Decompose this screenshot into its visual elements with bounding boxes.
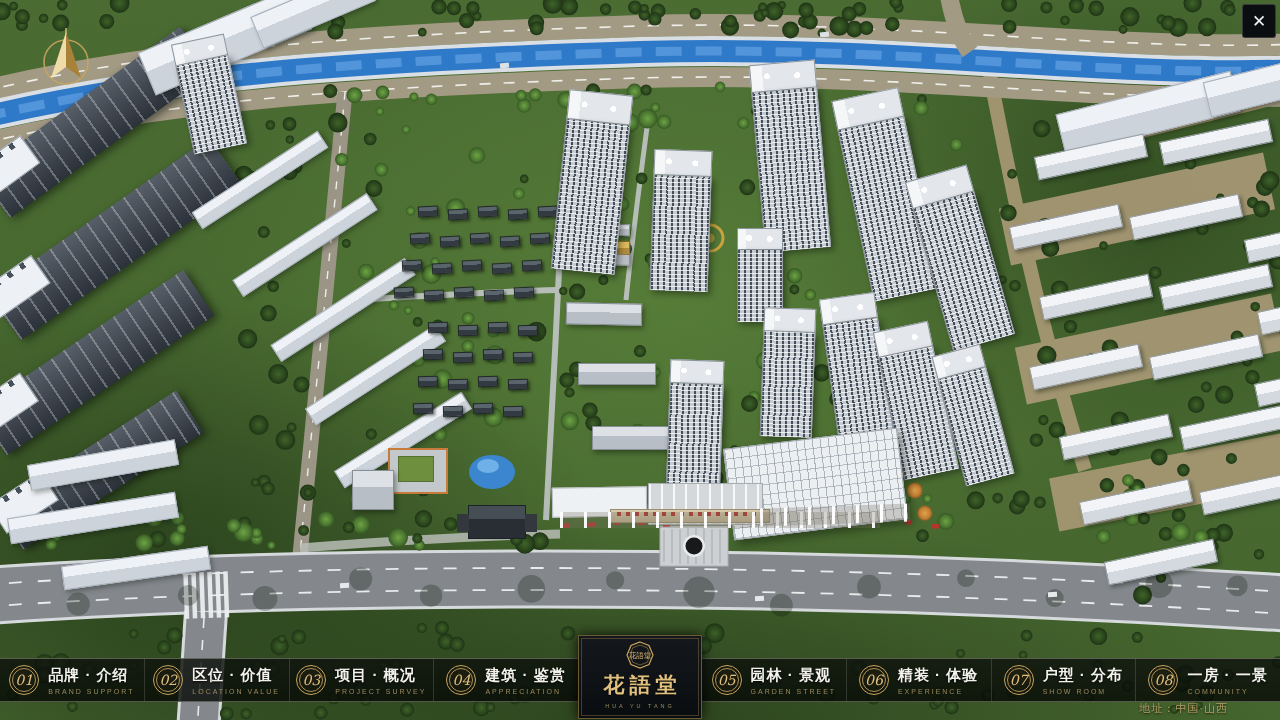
building-tower	[760, 307, 816, 438]
nav-label-cn: 精装 · 体验	[898, 666, 978, 685]
building-courtyard-house	[454, 286, 475, 298]
nav-label-cn: 建筑 · 鉴赏	[485, 666, 565, 685]
building-courtyard-house	[424, 289, 445, 301]
building-tower	[666, 359, 725, 500]
nav-item-floorplan-distribution[interactable]: 07 户型 · 分布 SHOW ROOM	[991, 659, 1136, 701]
nav-item-location-value[interactable]: 02 区位 · 价值 LOCATION VALUE	[144, 659, 289, 701]
building-roof-parapet	[0, 373, 39, 436]
building-warehouse	[1254, 361, 1280, 408]
building-courtyard-house	[484, 289, 505, 301]
building-warehouse	[1009, 204, 1124, 251]
building-residential-slab	[1203, 49, 1280, 118]
nav-label-cn: 户型 · 分布	[1043, 666, 1123, 685]
close-button[interactable]: ✕	[1242, 4, 1276, 38]
svg-text:花語堂: 花語堂	[629, 651, 652, 660]
building-courtyard-house	[453, 352, 473, 364]
nav-label-en: SHOW ROOM	[1043, 688, 1123, 695]
building-warehouse	[1059, 414, 1174, 461]
building-courtyard-house	[402, 259, 423, 271]
logo-title: 花語堂	[599, 671, 682, 699]
building-roof-parapet	[0, 135, 40, 199]
building-courtyard-house	[488, 322, 508, 334]
nav-label-cn: 区位 · 价值	[192, 666, 280, 685]
building-courtyard-house	[508, 379, 528, 391]
building-residential-slab	[232, 193, 377, 297]
building-tower	[650, 149, 713, 292]
building-warehouse	[1149, 334, 1264, 381]
nav-number-badge: 08	[1148, 665, 1178, 695]
building-courtyard-house	[478, 205, 499, 217]
nav-number-badge: 01	[9, 665, 39, 695]
building-warehouse	[1199, 469, 1280, 516]
building-courtyard-house	[473, 403, 493, 415]
building-courtyard-house	[514, 286, 535, 298]
nav-group-right: 05 园林 · 景观 GARDEN STREET 06 精装 · 体验 EXPE…	[702, 659, 1280, 701]
logo-subtitle: HUA YU TANG	[605, 703, 675, 709]
nav-label-en: PROJECT SURVEY	[335, 688, 426, 695]
app-window: ✕ 01 品牌 · 介绍 BRAND SUPPORT 02 区位 · 价值 LO…	[0, 0, 1280, 720]
building-tower	[749, 59, 831, 252]
building-courtyard-house	[448, 208, 469, 220]
building-courtyard-house	[503, 406, 523, 418]
parking-colonnade	[760, 503, 911, 526]
buildings-layer	[0, 0, 1280, 720]
building-courtyard-house	[483, 349, 503, 361]
building-midrise-slab	[352, 470, 394, 510]
masterplan-render	[0, 0, 1280, 720]
building-courtyard-house	[448, 379, 468, 391]
building-courtyard-house	[443, 406, 463, 418]
building-courtyard-house	[428, 322, 448, 334]
building-clubhouse	[388, 448, 448, 494]
nav-label-en: LOCATION VALUE	[192, 688, 280, 695]
building-courtyard-house	[492, 262, 513, 274]
building-courtyard-house	[462, 259, 483, 271]
building-warehouse	[1257, 289, 1280, 336]
building-midrise-slab	[578, 363, 656, 385]
nav-number-badge: 02	[153, 665, 183, 695]
building-midrise-slab	[566, 302, 642, 325]
nav-label-en: GARDEN STREET	[751, 688, 837, 695]
building-courtyard-house	[458, 325, 478, 337]
nav-item-architecture-appreciation[interactable]: 04 建筑 · 鉴赏 APPRECIATION	[433, 659, 578, 701]
building-midrise-slab	[592, 426, 674, 450]
building-warehouse	[1159, 264, 1274, 311]
nav-label-en: EXPERIENCE	[898, 688, 978, 695]
building-courtyard-house	[508, 208, 529, 220]
building-roof-parapet	[0, 255, 51, 318]
nav-item-interior-experience[interactable]: 06 精装 · 体验 EXPERIENCE	[846, 659, 991, 701]
building-courtyard-house	[500, 235, 521, 247]
building-courtyard-house	[518, 325, 538, 337]
building-warehouse	[1104, 539, 1219, 586]
building-courtyard-house	[423, 349, 443, 361]
nav-number-badge: 03	[296, 665, 326, 695]
center-logo-home[interactable]: 花語堂 花語堂 HUA YU TANG	[578, 635, 702, 719]
building-warehouse	[1029, 344, 1144, 391]
compass-icon	[36, 26, 100, 96]
building-warehouse	[1079, 479, 1194, 526]
nav-label-cn: 品牌 · 介绍	[48, 666, 134, 685]
nav-label-cn: 园林 · 景观	[751, 666, 837, 685]
nav-label-en: BRAND SUPPORT	[48, 688, 134, 695]
building-residential-slab	[61, 546, 211, 590]
nav-number-badge: 05	[712, 665, 742, 695]
building-warehouse	[1244, 217, 1280, 264]
nav-item-garden-landscape[interactable]: 05 园林 · 景观 GARDEN STREET	[702, 659, 846, 701]
building-residential-slab	[270, 258, 415, 362]
building-courtyard-house	[432, 262, 453, 274]
building-courtyard-house	[394, 286, 415, 298]
site-address: 地址：中国·山西	[1139, 701, 1228, 716]
nav-label-cn: 项目 · 概况	[335, 666, 426, 685]
building-warehouse	[1129, 194, 1244, 241]
building-courtyard-house	[413, 403, 433, 415]
nav-item-brand-intro[interactable]: 01 品牌 · 介绍 BRAND SUPPORT	[0, 659, 144, 701]
nav-item-room-view[interactable]: 08 一房 · 一景 COMMUNITY	[1135, 659, 1280, 701]
building-warehouse	[1039, 274, 1154, 321]
building-courtyard-house	[530, 232, 551, 244]
building-courtyard-house	[410, 232, 431, 244]
nav-item-project-overview[interactable]: 03 项目 · 概况 PROJECT SURVEY	[289, 659, 434, 701]
building-courtyard-house	[513, 352, 533, 364]
building-courtyard-house	[418, 205, 439, 217]
building-courtyard-house	[478, 376, 498, 388]
nav-number-badge: 06	[859, 665, 889, 695]
building-warehouse	[1179, 404, 1280, 451]
nav-group-left: 01 品牌 · 介绍 BRAND SUPPORT 02 区位 · 价值 LOCA…	[0, 659, 578, 701]
nav-label-en: APPRECIATION	[485, 688, 565, 695]
nav-number-badge: 04	[446, 665, 476, 695]
nav-label-cn: 一房 · 一景	[1187, 666, 1267, 685]
nav-label-en: COMMUNITY	[1187, 688, 1267, 695]
building-chinese-hall	[468, 505, 526, 539]
logo-seal-icon: 花語堂	[626, 641, 654, 669]
building-courtyard-house	[440, 235, 461, 247]
building-courtyard-house	[522, 259, 543, 271]
building-courtyard-house	[470, 232, 491, 244]
building-courtyard-house	[418, 376, 438, 388]
nav-number-badge: 07	[1004, 665, 1034, 695]
